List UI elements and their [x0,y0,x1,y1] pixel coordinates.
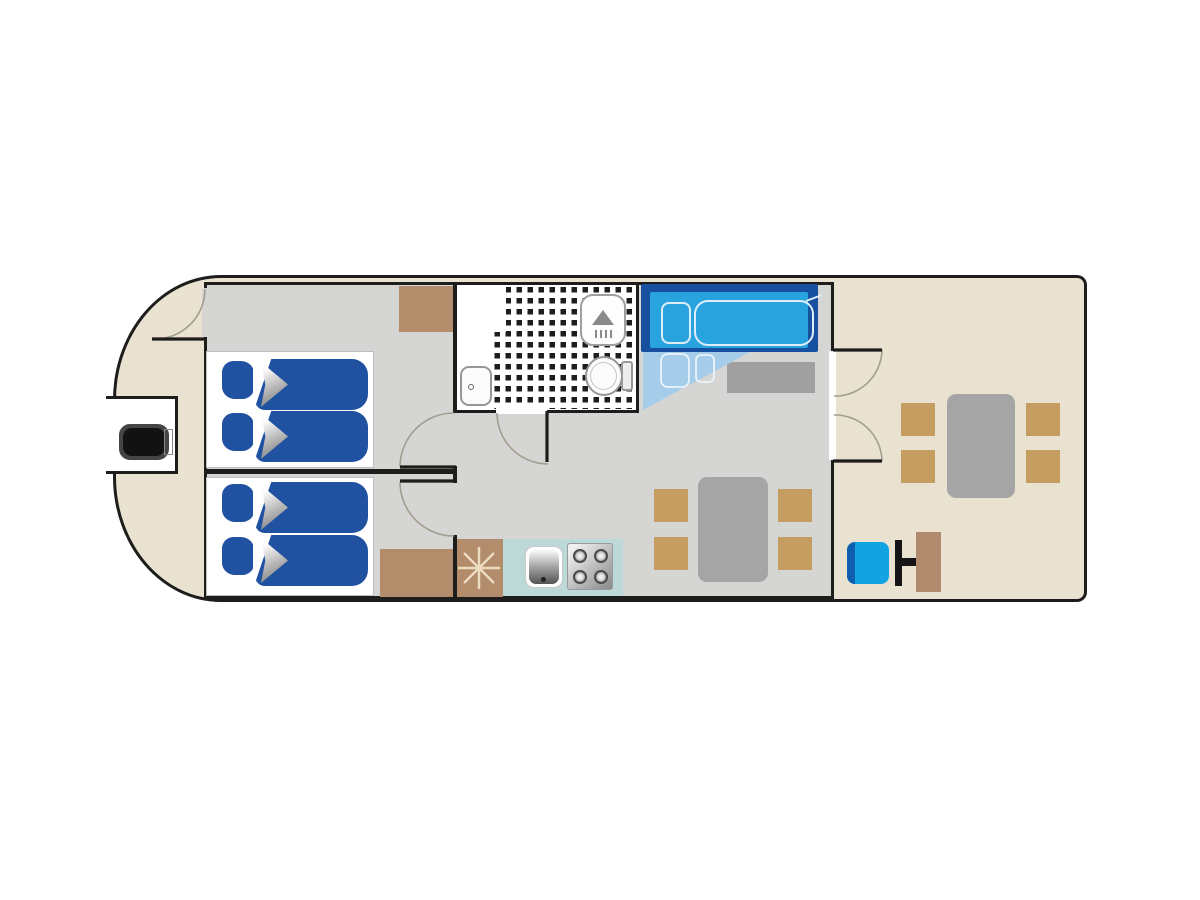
bed-blanket-icon [255,535,368,586]
burner-icon [594,549,608,563]
sink-icon [460,366,492,406]
floor-plan-canvas [0,0,1200,900]
steering-post-icon [895,540,902,586]
deck-chair [901,450,935,483]
cabin-divider-wall [204,469,455,474]
salon-chair [654,489,688,522]
bed-pillow-icon [222,537,254,575]
bed-pillow-icon [222,413,254,451]
salon-chair [778,537,812,570]
burner-icon [573,570,587,584]
bed-pillow-icon [222,361,254,399]
bed-blanket-icon [255,359,368,410]
outboard-motor-core [123,428,165,456]
blanket-fold [261,362,288,407]
salon-chair [654,537,688,570]
deck-table [947,394,1015,498]
blanket-fold [261,538,288,583]
blanket-fold [261,414,288,459]
bow-doorway [202,288,208,337]
salon-chair [778,489,812,522]
galley-fridge [455,539,503,597]
corridor-wall-stub [453,466,457,483]
salon-table [698,477,768,582]
corridor-wall-upper [453,282,457,413]
bed-blanket-icon [255,482,368,533]
steering-console [916,532,941,592]
bed-pillow-icon [222,484,254,522]
aft-doorway [829,351,836,460]
burner-icon [594,570,608,584]
blanket-fold [261,485,288,530]
toilet-bowl-inner [590,362,617,390]
motor-bracket [164,429,173,455]
sideboard [727,362,815,393]
stove-icon [567,543,613,590]
bed-blanket-icon [255,411,368,462]
helm-seat-back [847,542,855,584]
sink-drain [468,384,474,390]
cabin2-wardrobe [380,549,454,597]
corridor-wall-lower [453,535,457,599]
cabin1-wardrobe [399,286,454,332]
deck-chair [1026,403,1060,436]
shower-head-icon [592,310,614,325]
double-berth-mattress [650,292,808,348]
deck-chair [1026,450,1060,483]
deck-chair [901,403,935,436]
bathroom-doorway [496,408,547,414]
sink-drain [541,577,546,582]
burner-icon [573,549,587,563]
toilet-tank [621,361,633,391]
